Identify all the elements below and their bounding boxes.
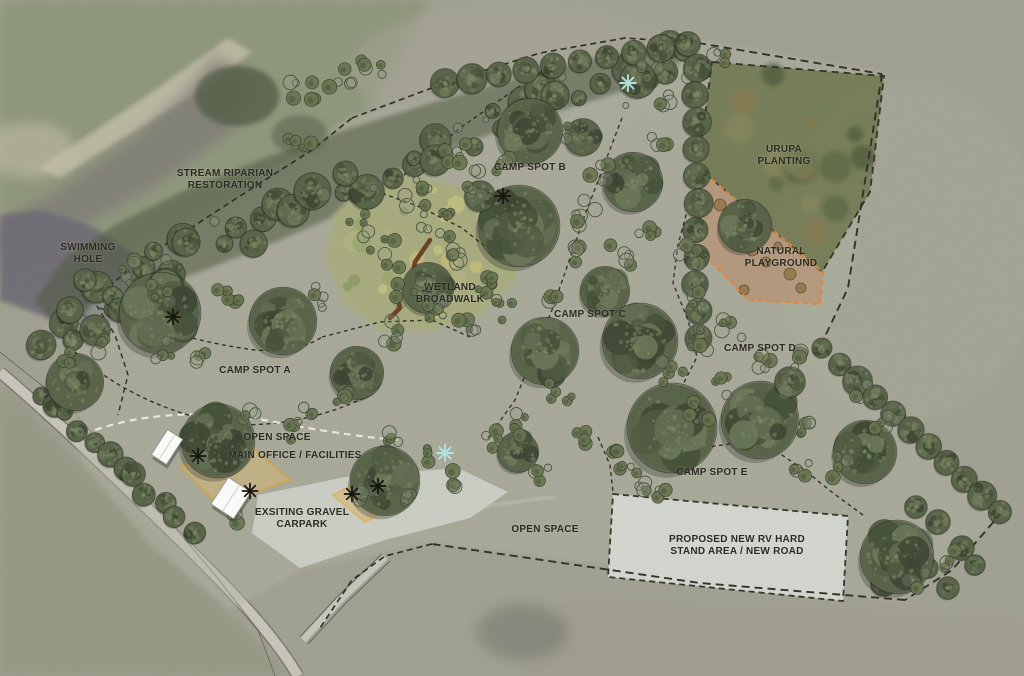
site-plan-map: STREAM RIPARIAN RESTORATIONSWIMMING HOLE… <box>0 0 1024 676</box>
feature-marker-icon <box>496 189 511 204</box>
feature-marker-icon <box>345 487 360 502</box>
feature-marker-icon <box>371 479 386 494</box>
feature-marker-icon <box>243 484 258 499</box>
feature-marker-icon <box>166 310 181 325</box>
feature-marker-icon <box>620 75 636 91</box>
map-graphics <box>0 0 1024 676</box>
feature-marker-icon <box>437 445 453 461</box>
feature-marker-icon <box>191 449 206 464</box>
